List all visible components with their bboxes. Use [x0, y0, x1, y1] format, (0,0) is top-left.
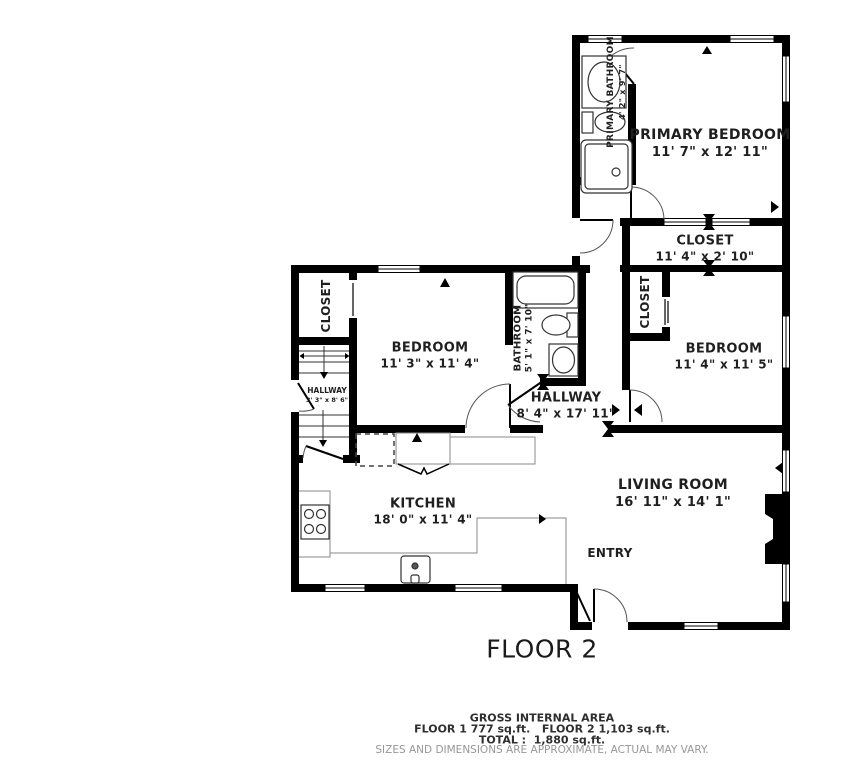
room-name: CLOSET — [319, 279, 335, 332]
window — [664, 219, 706, 226]
appliance-dashed — [356, 434, 394, 466]
label-closet-top: CLOSET 11' 4" x 2' 10" — [656, 233, 755, 266]
label-bedroom-left: BEDROOM 11' 3" x 11' 4" — [381, 340, 480, 373]
room-name: BEDROOM — [381, 340, 480, 357]
room-name: CLOSET — [656, 233, 755, 250]
label-hallway-small: HALLWAY 3' 3" x 8' 6" — [306, 386, 348, 404]
room-name: PRIMARY BATHROOM — [606, 36, 618, 148]
vanity-sink — [549, 344, 578, 376]
room-dims: 11' 4" x 11' 5" — [675, 358, 774, 374]
room-dims: 4' 2" x 9' 7" — [618, 36, 629, 148]
footer-disclaimer: SIZES AND DIMENSIONS ARE APPROXIMATE, AC… — [375, 744, 708, 758]
label-hallway: HALLWAY 8' 4" x 17' 11" — [517, 390, 616, 423]
toilet — [542, 313, 578, 337]
room-name: BATHROOM — [511, 304, 524, 373]
room-dims: 11' 3" x 11' 4" — [381, 357, 480, 373]
window — [783, 564, 790, 602]
cabinet-bifold — [396, 433, 450, 474]
room-dims: 11' 4" x 2' 10" — [656, 250, 755, 266]
window — [378, 266, 420, 273]
room-dims: 18' 0" x 11' 4" — [374, 513, 473, 529]
label-bathroom: BATHROOM 5' 1" x 7' 10" — [511, 304, 536, 373]
floor-plan-drawing — [0, 0, 862, 768]
room-name: CLOSET — [638, 275, 654, 328]
shower — [581, 140, 632, 193]
window — [325, 585, 365, 592]
room-name: HALLWAY — [517, 390, 616, 407]
label-entry: ENTRY — [587, 546, 632, 562]
room-name: PRIMARY BEDROOM — [630, 126, 791, 144]
window — [730, 36, 774, 43]
floor-plan-page: PRIMARY BATHROOM 4' 2" x 9' 7" PRIMARY B… — [0, 0, 862, 768]
window — [455, 585, 502, 592]
label-bedroom-right: BEDROOM 11' 4" x 11' 5" — [675, 341, 774, 374]
room-dims: 3' 3" x 8' 6" — [306, 396, 348, 405]
kitchen-sink — [401, 556, 430, 583]
label-closet-right: CLOSET — [638, 275, 654, 328]
window — [783, 450, 790, 492]
bathtub — [513, 272, 578, 308]
stove — [301, 505, 329, 539]
room-name: KITCHEN — [374, 496, 473, 513]
room-name: LIVING ROOM — [615, 476, 731, 494]
room-dims: 5' 1" x 7' 10" — [525, 304, 537, 373]
room-name: ENTRY — [587, 546, 632, 562]
walls — [291, 35, 790, 630]
label-closet-left: CLOSET — [319, 279, 335, 332]
window — [783, 316, 790, 368]
fireplace — [765, 494, 784, 564]
room-name: HALLWAY — [306, 386, 348, 396]
window — [783, 56, 790, 102]
label-primary-bedroom: PRIMARY BEDROOM 11' 7" x 12' 11" — [630, 126, 791, 162]
window — [684, 623, 718, 630]
label-kitchen: KITCHEN 18' 0" x 11' 4" — [374, 496, 473, 529]
room-name: BEDROOM — [675, 341, 774, 358]
label-living-room: LIVING ROOM 16' 11" x 14' 1" — [615, 476, 731, 512]
window — [712, 219, 750, 226]
floor-title: FLOOR 2 — [486, 633, 598, 666]
room-dims: 16' 11" x 14' 1" — [615, 495, 731, 512]
label-primary-bathroom: PRIMARY BATHROOM 4' 2" x 9' 7" — [606, 36, 628, 148]
room-dims: 8' 4" x 17' 11" — [517, 407, 616, 423]
room-dims: 11' 7" x 12' 11" — [630, 145, 791, 162]
